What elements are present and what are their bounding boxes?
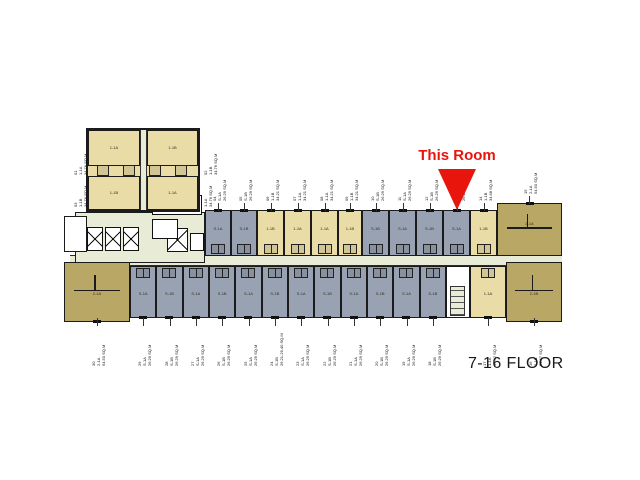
label-tick: [222, 318, 223, 326]
bath-pod: [294, 268, 308, 278]
unit-id-label: 26S-1B26.29 SQ.M: [215, 327, 229, 367]
bath-pod-divider: [275, 269, 276, 277]
unit-type-label: S-1B: [263, 291, 287, 296]
unit-id-label: 152-1A54.50 SQ.M: [522, 155, 536, 195]
bath-pod-divider: [354, 269, 355, 277]
unit-type-label: S-1B: [421, 291, 445, 296]
label-tick: [298, 203, 299, 211]
unit-id-label: 061-1B34.21 SQ.M: [264, 162, 278, 202]
unit-id-label-text: 05S-1B26.29 SQ.M: [239, 162, 252, 201]
bath-pod: [162, 268, 176, 278]
unit-id-label: 302-1A54.50 SQ.M: [90, 327, 104, 367]
unit-id-label: 10S-1B26.29 SQ.M: [369, 162, 383, 202]
unit-id-label-text: 04S-1A26.29 SQ.M: [213, 162, 226, 201]
bath-pod-divider: [196, 269, 197, 277]
unit-id-label: 22S-1B26.29 SQ.M: [321, 327, 335, 367]
unit-id-label-line: 34.68 SQ.M: [488, 162, 493, 201]
unit-id-label-line: 26.29 SQ.M: [249, 162, 254, 201]
unit-13: S-1A: [443, 210, 470, 256]
bath-pod-divider: [298, 245, 299, 253]
label-tick: [534, 318, 535, 326]
bath-pod: [318, 244, 332, 254]
unit-type-label: S-1A: [131, 291, 155, 296]
unit-id-label-line: 26.29 SQ.M: [223, 162, 228, 201]
unit-id-label-line: 26.29 SQ.M: [200, 327, 205, 366]
unit-id-label: 031-1B34.76 SQ.M: [72, 168, 86, 208]
unit-27: S-1A: [183, 266, 209, 318]
unit-id-label-line: 34.21 SQ.M: [355, 162, 360, 201]
bath-pod: [136, 268, 150, 278]
unit-id-label-line: 34.21 SQ.M: [302, 162, 307, 201]
bath-pod-divider: [327, 269, 328, 277]
label-tick: [529, 196, 530, 204]
unit-type-label: 1-1B: [89, 190, 139, 195]
label-tick: [143, 318, 144, 326]
bath-pod: [291, 244, 305, 254]
core-left-room: [64, 216, 87, 252]
unit-id-label-text: 23S-1A26.29 SQ.M: [296, 327, 309, 366]
unit-type-label: 1-1A: [148, 190, 197, 195]
bath-pod-divider: [380, 269, 381, 277]
unit-type-label: 1-1B: [471, 226, 496, 231]
unit-type-label: S-1A: [342, 291, 366, 296]
unit-16: 2-1B: [506, 262, 562, 322]
bath-pod: [211, 244, 225, 254]
unit-type-label: 1-1B: [339, 226, 361, 231]
label-tick: [301, 318, 302, 326]
unit-type-label: S-1B: [368, 291, 392, 296]
unit-22: S-1B: [314, 266, 340, 318]
unit-17: 1-1A: [470, 266, 506, 318]
unit-id-label-text: 141-1B34.68 SQ.M: [479, 162, 492, 201]
unit-type-label: S-1A: [206, 226, 230, 231]
interior-wall: [527, 214, 529, 227]
unit-id-label-text: 091-1B34.21 SQ.M: [345, 162, 358, 201]
bath-pod: [215, 268, 229, 278]
floor-plan: This Room 7-16 FLOOR 1-1A1-1B1-1B1-1A011…: [0, 0, 640, 480]
elevator-icon: [87, 227, 103, 251]
label-tick: [218, 203, 219, 211]
unit-id-label: 071-1A34.21 SQ.M: [291, 162, 305, 202]
unit-type-label: 1-1A: [89, 145, 139, 150]
bath-pod-divider: [376, 245, 377, 253]
unit-id-label-text: 11S-1A26.29 SQ.M: [398, 162, 411, 201]
unit-id-label-text: 25S-1A26.29 SQ.M: [244, 327, 257, 366]
service-stair-icon: [450, 286, 465, 316]
unit-id-label-line: 26.29 SQ.M: [380, 162, 385, 201]
unit-20: S-1B: [367, 266, 393, 318]
unit-id-label-text: 162-1B54.67 SQ.M: [529, 327, 542, 366]
label-tick: [271, 203, 272, 211]
unit-id-label: 141-1B34.68 SQ.M: [477, 162, 491, 202]
unit-08: 1-1A: [311, 210, 338, 256]
unit-type-label: S-1A: [444, 226, 469, 231]
unit-type-label: 1-1A: [312, 226, 337, 231]
bath-pod: [373, 268, 387, 278]
bath-pod-divider: [325, 245, 326, 253]
unit-type-label: S-1A: [394, 291, 418, 296]
unit-id-label-line: 54.50 SQ.M: [102, 327, 107, 366]
unit-type-label: S-1A: [236, 291, 260, 296]
unit-11: S-1A: [389, 210, 416, 256]
bath-pod-divider: [143, 269, 144, 277]
unit-type-label: S-1B: [232, 226, 256, 231]
unit-id-label: 091-1B34.21 SQ.M: [343, 162, 357, 202]
unit-type-label: 2-1B: [507, 291, 561, 296]
unit-id-label-line: 26.29 SQ.M: [407, 162, 412, 201]
unit-id-label-line: 26.29 SQ.M: [437, 327, 442, 366]
bath-pod: [423, 244, 437, 254]
elevator-icon: [105, 227, 121, 251]
bath-pod: [426, 268, 440, 278]
unit-04: S-1A: [205, 210, 231, 256]
bath-pod: [241, 268, 255, 278]
unit-id-label-line: 26.29 SQ.M: [227, 327, 232, 366]
bath-pod-divider: [271, 245, 272, 253]
core-service-room: [152, 219, 178, 239]
bath-pod: [481, 268, 495, 278]
unit-id-label-text: 061-1B34.21 SQ.M: [266, 162, 279, 201]
bath-pod: [320, 268, 334, 278]
bath-pod-divider: [484, 245, 485, 253]
unit-id-label-line: 26.29 SQ.M: [358, 327, 363, 366]
bath-pod-divider: [430, 245, 431, 253]
unit-id-label-text: 27S-1A26.29 SQ.M: [191, 327, 204, 366]
bath-pod: [450, 244, 464, 254]
unit-id-label: 081-1A34.21 SQ.M: [318, 162, 332, 202]
unit-id-label-text: 20S-1B26.29 SQ.M: [375, 327, 388, 366]
label-tick: [380, 318, 381, 326]
unit-id-label-line: 34.76 SQ.M: [84, 168, 89, 207]
unit-23: S-1A: [288, 266, 314, 318]
label-tick: [350, 203, 351, 211]
this-room-arrow-icon: [438, 169, 476, 210]
bath-pod-divider: [301, 269, 302, 277]
label-tick: [433, 318, 434, 326]
bath-pod: [369, 244, 383, 254]
bath-pod-divider: [488, 269, 489, 277]
unit-id-label-line: 26.29 SQ.M: [174, 327, 179, 366]
bath-pod-divider: [244, 245, 245, 253]
unit-id-label-text: 28S-1B26.29 SQ.M: [165, 327, 178, 366]
unit-05: S-1B: [231, 210, 257, 256]
unit-id-label-line: 26.29 SQ.M: [385, 327, 390, 366]
unit-id-label: 162-1B54.67 SQ.M: [527, 327, 541, 367]
unit-type-label: S-1B: [417, 226, 442, 231]
unit-type-label: S-1A: [390, 226, 415, 231]
unit-07: 1-1A: [284, 210, 311, 256]
bath-pod: [175, 165, 187, 176]
bath-pod-divider: [222, 269, 223, 277]
unit-id-label: 21S-1A26.29 SQ.M: [347, 327, 361, 367]
bath-pod-divider: [169, 269, 170, 277]
unit-id-label-line: 34.21 SQ.M: [329, 162, 334, 201]
unit-id-label-line: 26.29 SQ.M: [306, 327, 311, 366]
unit-id-label: 24S-1B26.21-26.40 SQ.M: [268, 327, 282, 367]
unit-id-label-text: 10S-1B26.29 SQ.M: [371, 162, 384, 201]
unit-id-label-text: 29S-1A26.29 SQ.M: [138, 327, 151, 366]
unit-id-label-text: 22S-1B26.29 SQ.M: [323, 327, 336, 366]
label-tick: [328, 318, 329, 326]
unit-id-label-text: 26S-1B26.29 SQ.M: [217, 327, 230, 366]
unit-id-label-line: 34.21 SQ.M: [275, 162, 280, 201]
interior-wall: [74, 290, 120, 292]
unit-type-label: S-1B: [210, 291, 234, 296]
unit-30: 2-1A: [64, 262, 130, 322]
unit-type-label: 1-1A: [285, 226, 310, 231]
bath-pod: [396, 244, 410, 254]
bath-pod-divider: [433, 269, 434, 277]
unit-10: S-1B: [362, 210, 389, 256]
bath-pod-divider: [350, 245, 351, 253]
unit-id-label-text: 19S-1A26.29 SQ.M: [402, 327, 415, 366]
unit-06: 1-1B: [257, 210, 284, 256]
unit-id-label: 29S-1A26.29 SQ.M: [136, 327, 150, 367]
unit-21: S-1A: [341, 266, 367, 318]
bath-pod: [268, 268, 282, 278]
label-tick: [97, 318, 98, 326]
unit-type-label: S-1A: [184, 291, 208, 296]
label-tick: [484, 203, 485, 211]
unit-18: S-1B: [420, 266, 446, 318]
bath-pod: [347, 268, 361, 278]
unit-id-label: 20S-1B26.29 SQ.M: [373, 327, 387, 367]
interior-wall: [532, 275, 534, 290]
unit-type-label: 1-1A: [471, 291, 505, 296]
unit-type-label: S-1A: [289, 291, 313, 296]
label-tick: [196, 318, 197, 326]
label-tick: [170, 318, 171, 326]
unit-09: 1-1B: [338, 210, 362, 256]
bath-pod: [399, 268, 413, 278]
unit-26: S-1B: [209, 266, 235, 318]
bath-pod: [264, 244, 278, 254]
unit-id-label-line: 34.42 SQ.M: [493, 327, 498, 366]
unit-id-label: 11S-1A26.29 SQ.M: [396, 162, 410, 202]
label-tick: [249, 318, 250, 326]
unit-type-label: 1-1B: [258, 226, 283, 231]
label-tick: [407, 318, 408, 326]
label-tick: [244, 203, 245, 211]
unit-id-label-line: 26.29 SQ.M: [332, 327, 337, 366]
unit-id-label-text: 081-1A34.21 SQ.M: [320, 162, 333, 201]
bath-pod-divider: [218, 245, 219, 253]
unit-id-label-text: 071-1A34.21 SQ.M: [293, 162, 306, 201]
bath-pod-divider: [406, 269, 407, 277]
unit-id-label-text: 24S-1B26.21-26.40 SQ.M: [270, 327, 283, 366]
unit-id-label: 19S-1A26.29 SQ.M: [400, 327, 414, 367]
unit-id-label: 25S-1A26.29 SQ.M: [242, 327, 256, 367]
unit-id-label-line: 26.29 SQ.M: [253, 327, 258, 366]
unit-id-label-text: 12S-1B26.29 SQ.M: [425, 162, 438, 201]
unit-14: 1-1B: [470, 210, 497, 256]
unit-id-label: 12S-1B26.29 SQ.M: [423, 162, 437, 202]
unit-id-label: 171-1A34.42 SQ.M: [481, 327, 495, 367]
label-tick: [403, 203, 404, 211]
bath-pod: [189, 268, 203, 278]
label-tick: [275, 318, 276, 326]
unit-id-label-text: 152-1A54.50 SQ.M: [524, 155, 537, 194]
tower-unit-02: 1-1B: [147, 130, 198, 166]
interior-wall: [507, 227, 552, 229]
unit-type-label: S-1B: [363, 226, 388, 231]
unit-15: 2-1A: [497, 203, 562, 256]
unit-id-label-text: 302-1A54.50 SQ.M: [92, 327, 105, 366]
bath-pod: [477, 244, 491, 254]
unit-id-label: 04S-1A26.29 SQ.M: [211, 162, 225, 202]
unit-id-label: 27S-1A26.29 SQ.M: [189, 327, 203, 367]
unit-id-label-text: 18S-1B26.29 SQ.M: [428, 327, 441, 366]
unit-25: S-1A: [235, 266, 261, 318]
label-tick: [430, 203, 431, 211]
label-tick: [354, 318, 355, 326]
bath-pod-divider: [403, 245, 404, 253]
label-tick: [376, 203, 377, 211]
this-room-label: This Room: [397, 147, 517, 164]
unit-type-label: S-1B: [157, 291, 181, 296]
unit-24: S-1B: [262, 266, 288, 318]
unit-id-label-line: 54.50 SQ.M: [534, 155, 539, 194]
unit-id-label-text: 171-1A34.42 SQ.M: [483, 327, 496, 366]
elevator-icon: [123, 227, 139, 251]
unit-id-label-line: 54.67 SQ.M: [539, 327, 544, 366]
unit-id-label: 05S-1B26.29 SQ.M: [237, 162, 251, 202]
unit-type-label: S-1B: [315, 291, 339, 296]
unit-id-label-line: 26.29 SQ.M: [411, 327, 416, 366]
unit-12: S-1B: [416, 210, 443, 256]
unit-id-label: 28S-1B26.29 SQ.M: [163, 327, 177, 367]
this-room-callout: This Room: [397, 147, 517, 164]
tower-unit-03: 1-1B: [88, 176, 140, 210]
unit-29: S-1A: [130, 266, 156, 318]
bath-pod: [343, 244, 357, 254]
unit-id-label-text: 21S-1A26.29 SQ.M: [349, 327, 362, 366]
bath-pod: [149, 165, 161, 176]
interior-wall: [94, 275, 96, 290]
bath-pod-divider: [457, 245, 458, 253]
tower-unit-1-1A: 1-1A: [147, 176, 198, 210]
unit-id-label-text: 031-1B34.76 SQ.M: [74, 168, 87, 207]
interior-wall: [515, 290, 554, 292]
unit-28: S-1B: [156, 266, 182, 318]
unit-type-label: 1-1B: [148, 145, 197, 150]
unit-19: S-1A: [393, 266, 419, 318]
unit-type-label: 2-1A: [65, 291, 129, 296]
tower-unit-01: 1-1A: [88, 130, 140, 166]
bath-pod: [97, 165, 109, 176]
unit-id-label: 23S-1A26.29 SQ.M: [294, 327, 308, 367]
unit-id-label: 18S-1B26.29 SQ.M: [426, 327, 440, 367]
unit-id-label-line: 26.29 SQ.M: [148, 327, 153, 366]
tower-corridor: [140, 130, 147, 210]
unit-type-label: 2-1A: [498, 221, 561, 226]
bath-pod-divider: [248, 269, 249, 277]
bath-pod: [123, 165, 135, 176]
label-tick: [325, 203, 326, 211]
bath-pod: [237, 244, 251, 254]
label-tick: [488, 318, 489, 326]
unit-id-label-line: 26.21-26.40 SQ.M: [279, 327, 284, 366]
core-service-room: [190, 233, 204, 251]
